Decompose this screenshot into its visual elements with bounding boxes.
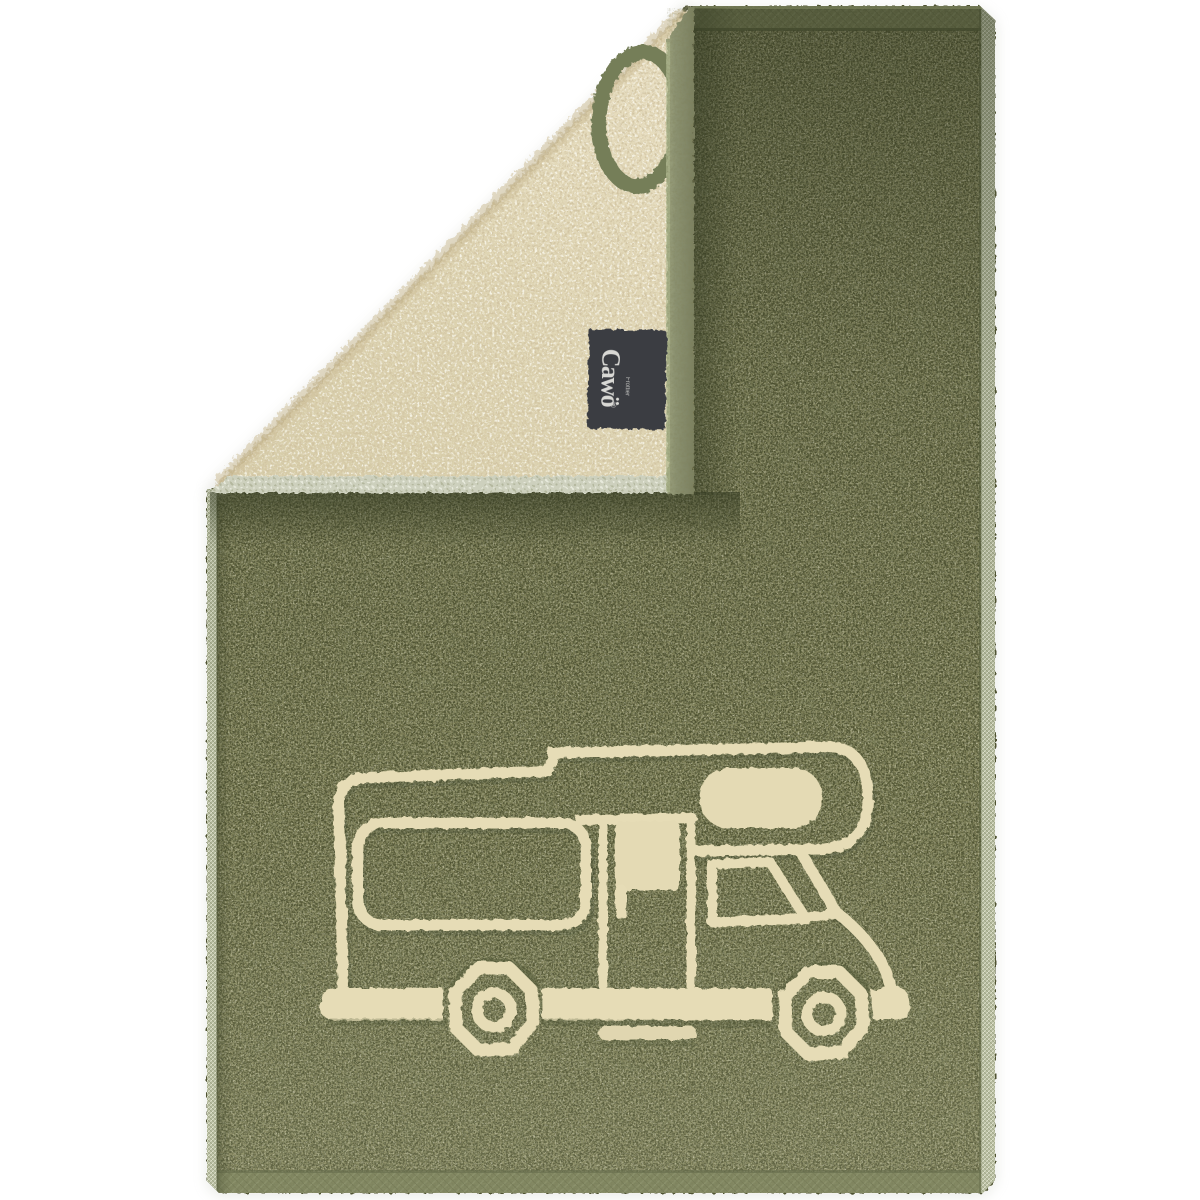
svg-text:Frottier: Frottier	[624, 377, 630, 396]
svg-text:Cawö: Cawö	[595, 348, 625, 408]
svg-text:®: ®	[608, 402, 617, 408]
